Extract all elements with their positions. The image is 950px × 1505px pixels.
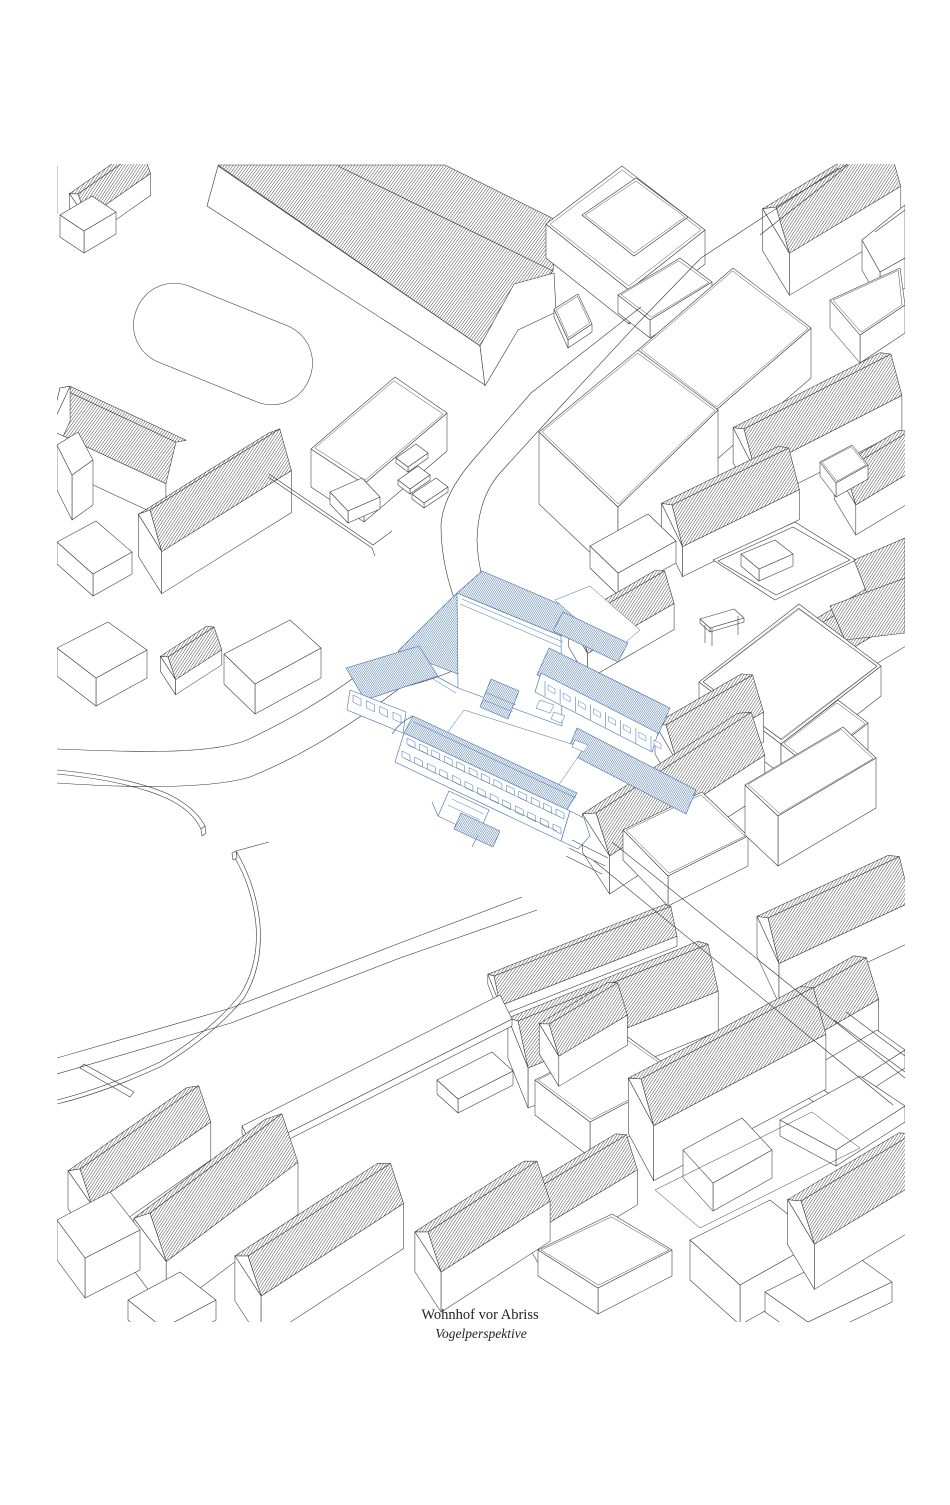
- svg-text:Vogelperspektive: Vogelperspektive: [435, 1326, 526, 1341]
- svg-text:Wohnhof vor Abriss: Wohnhof vor Abriss: [421, 1307, 539, 1323]
